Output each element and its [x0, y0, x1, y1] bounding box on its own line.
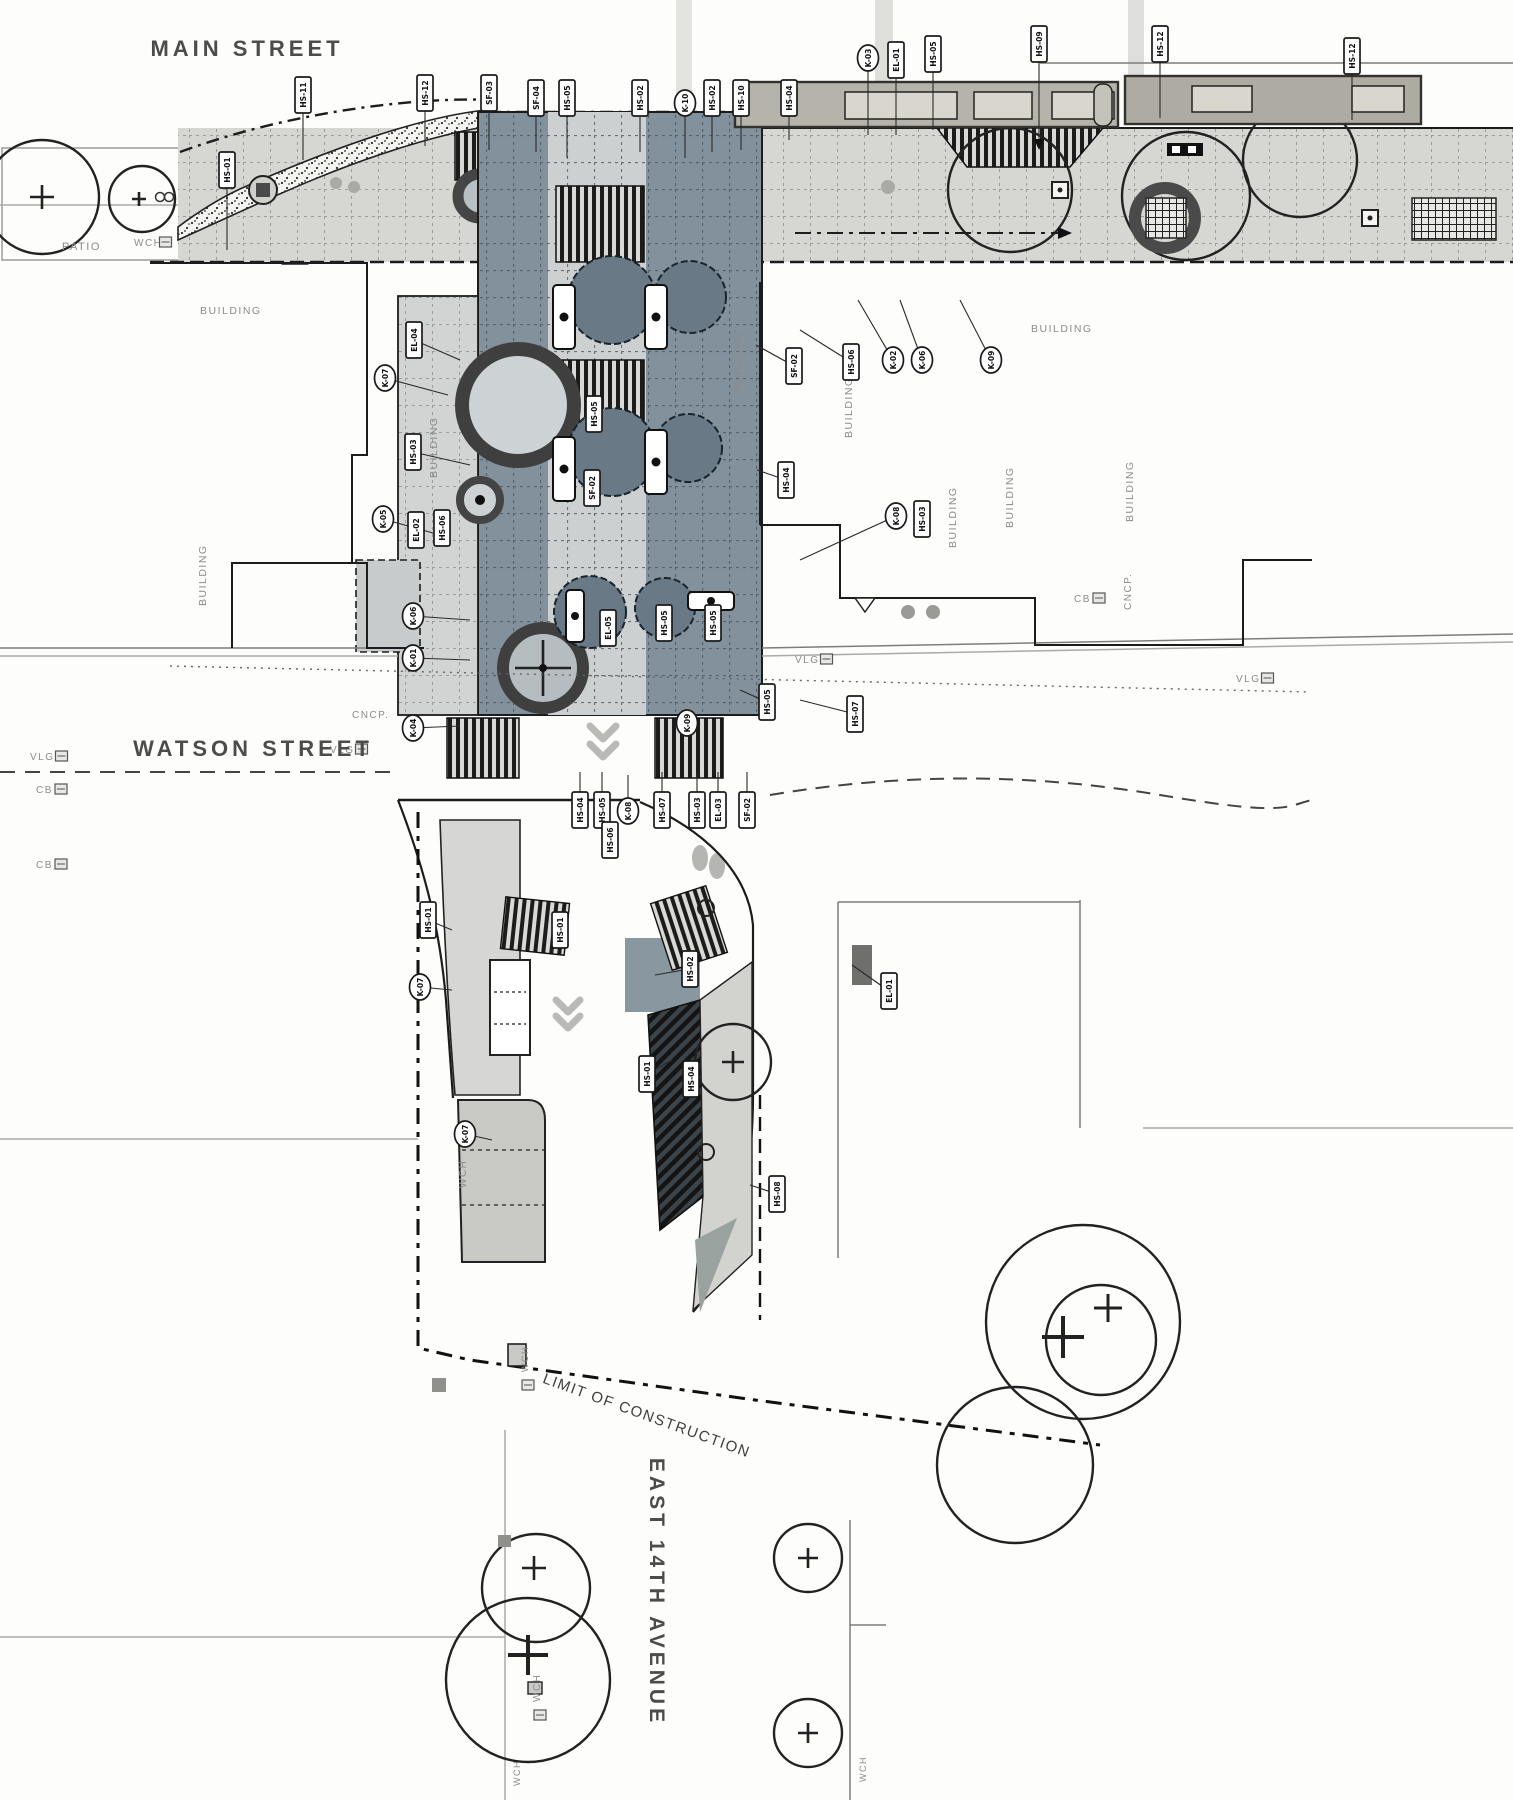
callout-code: HS-02 — [708, 85, 717, 110]
callout-code: HS-02 — [636, 85, 645, 110]
label-building: BUILDING — [843, 376, 855, 438]
callout-code: K-07 — [381, 369, 390, 388]
callout-HS-03: HS-03 — [405, 434, 421, 470]
callout-code: HS-05 — [660, 610, 669, 635]
plaza-tree — [568, 256, 656, 344]
callout-HS-12: HS-12 — [1152, 26, 1168, 62]
callout-code: HS-04 — [785, 85, 794, 110]
label-building: BUILDING — [1004, 466, 1016, 528]
callout-code: HS-01 — [556, 917, 565, 942]
callout-K-10: K-10 — [675, 90, 696, 116]
bench-grate — [1412, 198, 1496, 240]
callout-K-07: K-07 — [455, 1121, 476, 1147]
callout-SF-04: SF-04 — [528, 80, 544, 116]
label-vlg: VLG — [30, 752, 55, 763]
survey-marker-icon — [498, 1535, 511, 1547]
callout-HS-03: HS-03 — [689, 792, 705, 828]
callout-HS-07: HS-07 — [654, 792, 670, 828]
label-building: BUILDING — [1124, 460, 1136, 522]
callout-code: HS-04 — [782, 467, 791, 492]
callout-HS-09: HS-09 — [1031, 26, 1047, 62]
callout-code: HS-01 — [424, 907, 433, 932]
callout-EL-01: EL-01 — [881, 973, 897, 1009]
callout-code: HS-06 — [847, 349, 856, 374]
label-patio: PATIO — [62, 241, 101, 253]
callout-HS-02: HS-02 — [682, 951, 698, 987]
callout-code: EL-02 — [412, 518, 421, 541]
callout-EL-01: EL-01 — [888, 42, 904, 78]
callout-code: SF-02 — [743, 798, 752, 822]
shrub-icon — [330, 177, 342, 189]
callout-code: K-10 — [681, 94, 690, 113]
callout-code: K-09 — [987, 351, 996, 370]
label-building: BUILDING — [197, 544, 209, 606]
callout-K-02: K-02 — [883, 347, 904, 373]
callout-HS-05: HS-05 — [759, 684, 775, 720]
label-cncp: CNCP. — [352, 710, 389, 721]
callout-HS-04: HS-04 — [781, 80, 797, 116]
callout-HS-06: HS-06 — [434, 510, 450, 546]
callout-SF-02: SF-02 — [739, 792, 755, 828]
callout-code: K-07 — [416, 978, 425, 997]
callout-code: EL-03 — [714, 798, 723, 821]
callout-code: K-05 — [379, 510, 388, 529]
callout-code: EL-05 — [604, 616, 613, 639]
label-wch: WCH — [858, 1756, 868, 1782]
callout-code: K-02 — [889, 351, 898, 370]
planter-box — [852, 945, 872, 985]
callout-HS-12: HS-12 — [417, 75, 433, 111]
callout-code: HS-01 — [643, 1061, 652, 1086]
callout-HS-05: HS-05 — [925, 36, 941, 72]
callout-code: EL-01 — [892, 48, 901, 71]
label-cb: CB — [36, 860, 53, 871]
callout-HS-02: HS-02 — [632, 80, 648, 116]
label-wch: WCH — [458, 1160, 469, 1188]
callout-code: HS-12 — [1348, 43, 1357, 68]
callout-HS-05: HS-05 — [586, 396, 602, 432]
callout-code: HS-11 — [299, 82, 308, 107]
callout-code: HS-06 — [606, 827, 615, 852]
label-vlg: VLG — [1236, 674, 1261, 685]
callout-HS-05: HS-05 — [656, 605, 672, 641]
label-building: BUILDING — [428, 416, 440, 478]
callout-HS-01: HS-01 — [552, 912, 568, 948]
callout-code: HS-05 — [929, 41, 938, 66]
label-wch: WCH — [532, 1674, 543, 1702]
skylight — [845, 92, 957, 119]
label-cb: CB — [36, 785, 53, 796]
callout-K-01: K-01 — [403, 645, 424, 671]
callout-code: K-07 — [461, 1125, 470, 1144]
callout-HS-12: HS-12 — [1344, 38, 1360, 74]
callout-code: HS-05 — [709, 610, 718, 635]
callout-code: HS-07 — [851, 701, 860, 726]
callout-code: HS-01 — [223, 157, 232, 182]
label-vlg: VLG — [795, 655, 820, 666]
label-building: BUILDING — [1031, 323, 1093, 335]
callout-HS-06: HS-06 — [843, 344, 859, 380]
callout-HS-07: HS-07 — [847, 696, 863, 732]
callout-HS-05: HS-05 — [559, 80, 575, 116]
survey-marker-icon — [432, 1378, 446, 1392]
skylight — [1192, 86, 1252, 112]
callout-HS-10: HS-10 — [733, 80, 749, 116]
main-street-label: MAIN STREET — [150, 36, 343, 61]
callout-code: HS-12 — [1156, 31, 1165, 56]
callout-code: K-06 — [918, 351, 927, 370]
site-plan-canvas: PATIOWCHBUILDINGBUILDINGBUILDINGBUILDING… — [0, 0, 1513, 1800]
callout-K-09: K-09 — [677, 710, 698, 736]
callout-code: HS-04 — [687, 1066, 696, 1091]
callout-K-07: K-07 — [410, 974, 431, 1000]
callout-code: HS-05 — [763, 689, 772, 714]
callout-code: HS-06 — [438, 515, 447, 540]
callout-code: HS-02 — [686, 956, 695, 981]
callout-code: HS-03 — [409, 439, 418, 464]
label-wch: WCH — [512, 1760, 522, 1786]
callout-code: HS-03 — [693, 797, 702, 822]
label-building: BUILDING — [200, 305, 262, 317]
callout-code: K-09 — [683, 714, 692, 733]
callout-code: HS-08 — [773, 1181, 782, 1206]
callout-K-03: K-03 — [858, 45, 879, 71]
skylight — [974, 92, 1032, 119]
shrub-icon — [348, 181, 360, 193]
callout-K-07: K-07 — [375, 365, 396, 391]
crosswalk-west — [447, 718, 519, 778]
callout-HS-03: HS-03 — [914, 501, 930, 537]
callout-HS-06: HS-06 — [602, 822, 618, 858]
callout-HS-04: HS-04 — [572, 792, 588, 828]
callout-code: K-06 — [409, 607, 418, 626]
label-wch: WCH — [134, 238, 162, 249]
footprint-icon — [692, 845, 708, 871]
plaza-tree — [568, 408, 656, 496]
callout-HS-01: HS-01 — [219, 152, 235, 188]
callout-code: EL-01 — [885, 979, 894, 1002]
callout-code: HS-09 — [1035, 31, 1044, 56]
callout-code: EL-04 — [410, 328, 419, 351]
callout-code: HS-12 — [421, 80, 430, 105]
skylight — [1352, 86, 1404, 112]
callout-code: K-01 — [409, 649, 418, 668]
callout-K-04: K-04 — [403, 715, 424, 741]
label-wch: WCH — [520, 1346, 530, 1372]
callout-code: HS-05 — [598, 797, 607, 822]
crosswalk-north — [556, 186, 644, 262]
callout-HS-04: HS-04 — [683, 1061, 699, 1097]
callout-K-06: K-06 — [403, 603, 424, 629]
callout-HS-02: HS-02 — [704, 80, 720, 116]
callout-K-05: K-05 — [373, 506, 394, 532]
bus-shelter — [490, 960, 530, 1055]
callout-code: HS-03 — [918, 506, 927, 531]
callout-code: SF-03 — [485, 81, 494, 105]
bollard-icon — [926, 605, 940, 619]
callout-code: HS-07 — [658, 797, 667, 822]
callout-K-08: K-08 — [618, 798, 639, 824]
callout-K-08: K-08 — [886, 503, 907, 529]
callout-code: HS-05 — [590, 401, 599, 426]
label-building: BUILDING — [732, 330, 744, 392]
label-cb: CB — [1074, 594, 1091, 605]
callout-code: SF-02 — [790, 354, 799, 378]
callout-code: HS-10 — [737, 85, 746, 110]
callout-K-06: K-06 — [912, 347, 933, 373]
callout-EL-02: EL-02 — [408, 512, 424, 548]
callout-code: HS-05 — [563, 85, 572, 110]
shrub-icon — [881, 180, 895, 194]
callout-code: SF-04 — [532, 86, 541, 110]
callout-HS-05: HS-05 — [705, 605, 721, 641]
bollard-icon — [901, 605, 915, 619]
callout-SF-02: SF-02 — [584, 470, 600, 506]
callout-code: K-08 — [892, 507, 901, 526]
label-cncp: CNCP. — [1123, 573, 1134, 610]
callout-EL-04: EL-04 — [406, 322, 422, 358]
callout-code: K-08 — [624, 802, 633, 821]
callout-HS-01: HS-01 — [639, 1056, 655, 1092]
callout-HS-01: HS-01 — [420, 902, 436, 938]
callout-SF-03: SF-03 — [481, 75, 497, 111]
callout-EL-03: EL-03 — [710, 792, 726, 828]
callout-HS-04: HS-04 — [778, 462, 794, 498]
callout-HS-11: HS-11 — [295, 77, 311, 113]
callout-SF-02: SF-02 — [786, 348, 802, 384]
east-14th-avenue-label: EAST 14TH AVENUE — [645, 1458, 668, 1726]
callout-code: SF-02 — [588, 476, 597, 500]
callout-HS-08: HS-08 — [769, 1176, 785, 1212]
callout-code: K-03 — [864, 49, 873, 68]
callout-code: HS-04 — [576, 797, 585, 822]
watson-street-label: WATSON STREET — [133, 736, 373, 761]
callout-code: K-04 — [409, 719, 418, 738]
callout-K-09: K-09 — [981, 347, 1002, 373]
label-building: BUILDING — [947, 486, 959, 548]
callout-EL-05: EL-05 — [600, 610, 616, 646]
tree-grate — [1146, 198, 1186, 238]
canopy-roof — [735, 76, 1421, 127]
